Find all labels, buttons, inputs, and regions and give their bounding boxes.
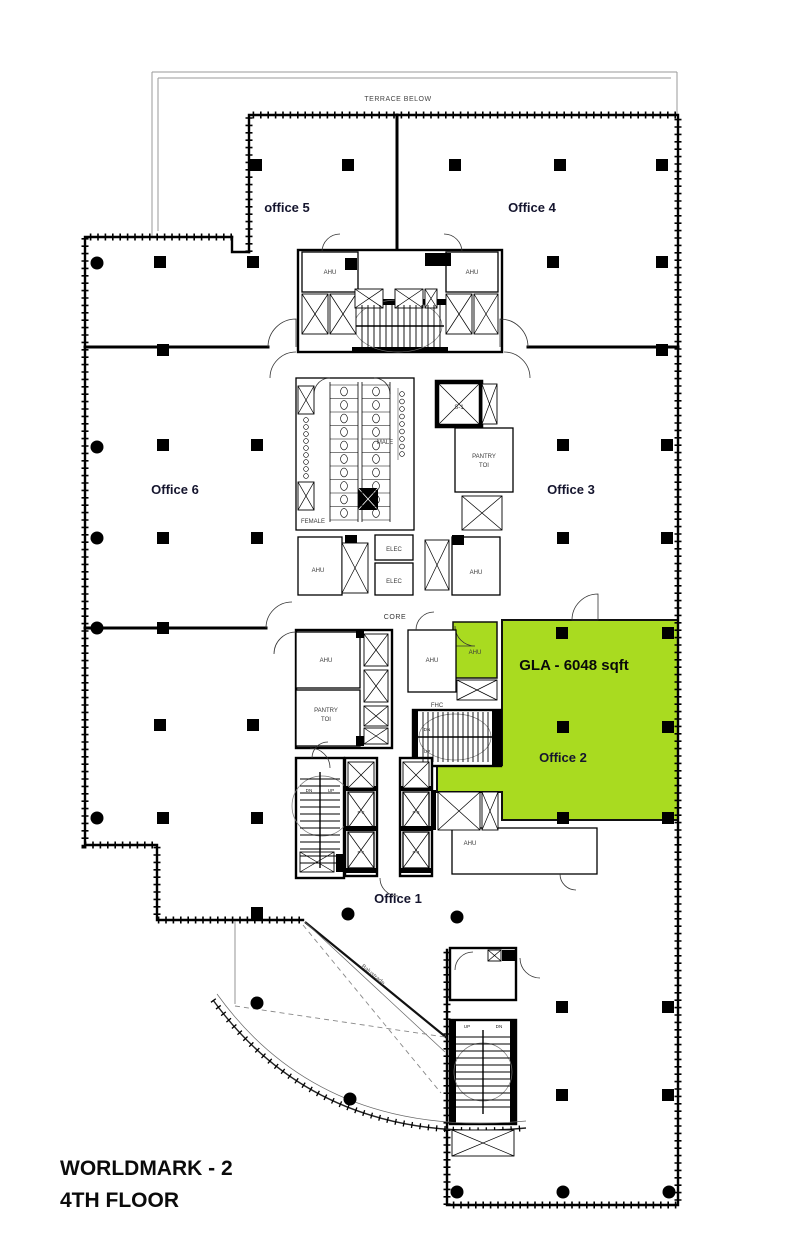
column-square bbox=[247, 719, 259, 731]
ahu-label: AHU bbox=[324, 270, 337, 276]
lift-p2-label: P-2 bbox=[357, 810, 365, 815]
terrace-note: TERRACE BELOW bbox=[364, 96, 431, 103]
column-square bbox=[157, 439, 169, 451]
column-square bbox=[556, 1089, 568, 1101]
office-4-label: Office 4 bbox=[508, 200, 556, 215]
column-round bbox=[91, 441, 104, 454]
column-round bbox=[91, 532, 104, 545]
column-square bbox=[662, 627, 674, 639]
column-square bbox=[247, 256, 259, 268]
office-2-label: Office 2 bbox=[539, 750, 587, 765]
balustrade-label: Balustrade bbox=[360, 964, 386, 987]
column-square bbox=[157, 344, 169, 356]
dn-label: DN bbox=[496, 1024, 503, 1029]
column-square bbox=[157, 622, 169, 634]
ahu-label: AHU bbox=[466, 270, 479, 276]
dn-label: DN bbox=[424, 727, 431, 732]
column-square bbox=[661, 439, 673, 451]
column-square bbox=[557, 532, 569, 544]
column-square bbox=[557, 721, 569, 733]
plan-title-line2: 4TH FLOOR bbox=[60, 1189, 179, 1212]
column-round bbox=[91, 622, 104, 635]
male-toilet-label: MALE bbox=[377, 440, 393, 446]
ahu-label: AHU bbox=[426, 658, 439, 664]
column-square bbox=[557, 439, 569, 451]
column-square bbox=[251, 812, 263, 824]
lift-p1-label: P-1 bbox=[357, 850, 365, 855]
fhc-label: FHC bbox=[431, 703, 444, 709]
column-square bbox=[342, 159, 354, 171]
ahu-label: AHU bbox=[469, 650, 482, 656]
column-square bbox=[154, 256, 166, 268]
column-round bbox=[91, 257, 104, 270]
column-square bbox=[556, 627, 568, 639]
female-toilet-label: FEMALE bbox=[301, 519, 325, 525]
column-square bbox=[557, 812, 569, 824]
column-square bbox=[157, 812, 169, 824]
floor-plan-drawing: TERRACE BELOW office 5 Office 4 Office 6… bbox=[0, 0, 798, 1238]
column-round bbox=[251, 997, 264, 1010]
column-round bbox=[344, 1093, 357, 1106]
column-square bbox=[554, 159, 566, 171]
office-3-label: Office 3 bbox=[547, 482, 595, 497]
toi-label: TOI bbox=[479, 463, 489, 469]
ahu-label: AHU bbox=[320, 658, 333, 664]
elec-label: ELEC bbox=[386, 547, 402, 553]
pantry-toi-room-upper bbox=[455, 428, 513, 492]
column-square bbox=[656, 344, 668, 356]
column-square bbox=[656, 159, 668, 171]
column-round bbox=[451, 911, 464, 924]
column-square bbox=[250, 159, 262, 171]
office-5-label: office 5 bbox=[264, 200, 310, 215]
column-square bbox=[547, 256, 559, 268]
column-round bbox=[557, 1186, 570, 1199]
ahu-label: AHU bbox=[312, 568, 325, 574]
column-square bbox=[157, 532, 169, 544]
dn-label: DN bbox=[306, 788, 313, 793]
column-square bbox=[251, 532, 263, 544]
ahu-label: AHU bbox=[470, 570, 483, 576]
column-square bbox=[662, 1001, 674, 1013]
column-square bbox=[556, 1001, 568, 1013]
ahu-room-office1 bbox=[452, 828, 597, 874]
column-round bbox=[451, 1186, 464, 1199]
column-round bbox=[91, 812, 104, 825]
gla-label: GLA - 6048 sqft bbox=[519, 657, 628, 674]
core-mid-block bbox=[296, 378, 513, 595]
ahu-room-mid-left bbox=[298, 537, 342, 595]
pantry-label: PANTRY bbox=[472, 454, 496, 460]
up-label: UP bbox=[424, 749, 430, 754]
pantry-label: PANTRY bbox=[314, 708, 338, 714]
column-square bbox=[661, 532, 673, 544]
column-square bbox=[251, 439, 263, 451]
office-6-label: Office 6 bbox=[151, 482, 199, 497]
column-square bbox=[656, 256, 668, 268]
floor-plan-page: TERRACE BELOW office 5 Office 4 Office 6… bbox=[0, 0, 798, 1238]
ahu-label: AHU bbox=[464, 841, 477, 847]
column-square bbox=[449, 159, 461, 171]
lift-p3-label: P-3 bbox=[412, 810, 420, 815]
up-label: UP bbox=[464, 1024, 470, 1029]
core-label: CORE bbox=[384, 614, 407, 621]
column-square bbox=[662, 812, 674, 824]
plan-title-line1: WORLDMARK - 2 bbox=[60, 1157, 233, 1180]
lift-p4-label: P-4 bbox=[412, 850, 420, 855]
column-round bbox=[663, 1186, 676, 1199]
column-square bbox=[662, 1089, 674, 1101]
column-square bbox=[154, 719, 166, 731]
toi-label: TOI bbox=[321, 717, 331, 723]
column-square bbox=[662, 721, 674, 733]
office-1-label: Office 1 bbox=[374, 891, 422, 906]
column-square bbox=[251, 907, 263, 919]
elec-label: ELEC bbox=[386, 579, 402, 585]
up-label: UP bbox=[328, 788, 334, 793]
column-round bbox=[342, 908, 355, 921]
s1-lift-label: S-1 bbox=[454, 405, 464, 411]
ahu-room-mid-right bbox=[452, 537, 500, 595]
